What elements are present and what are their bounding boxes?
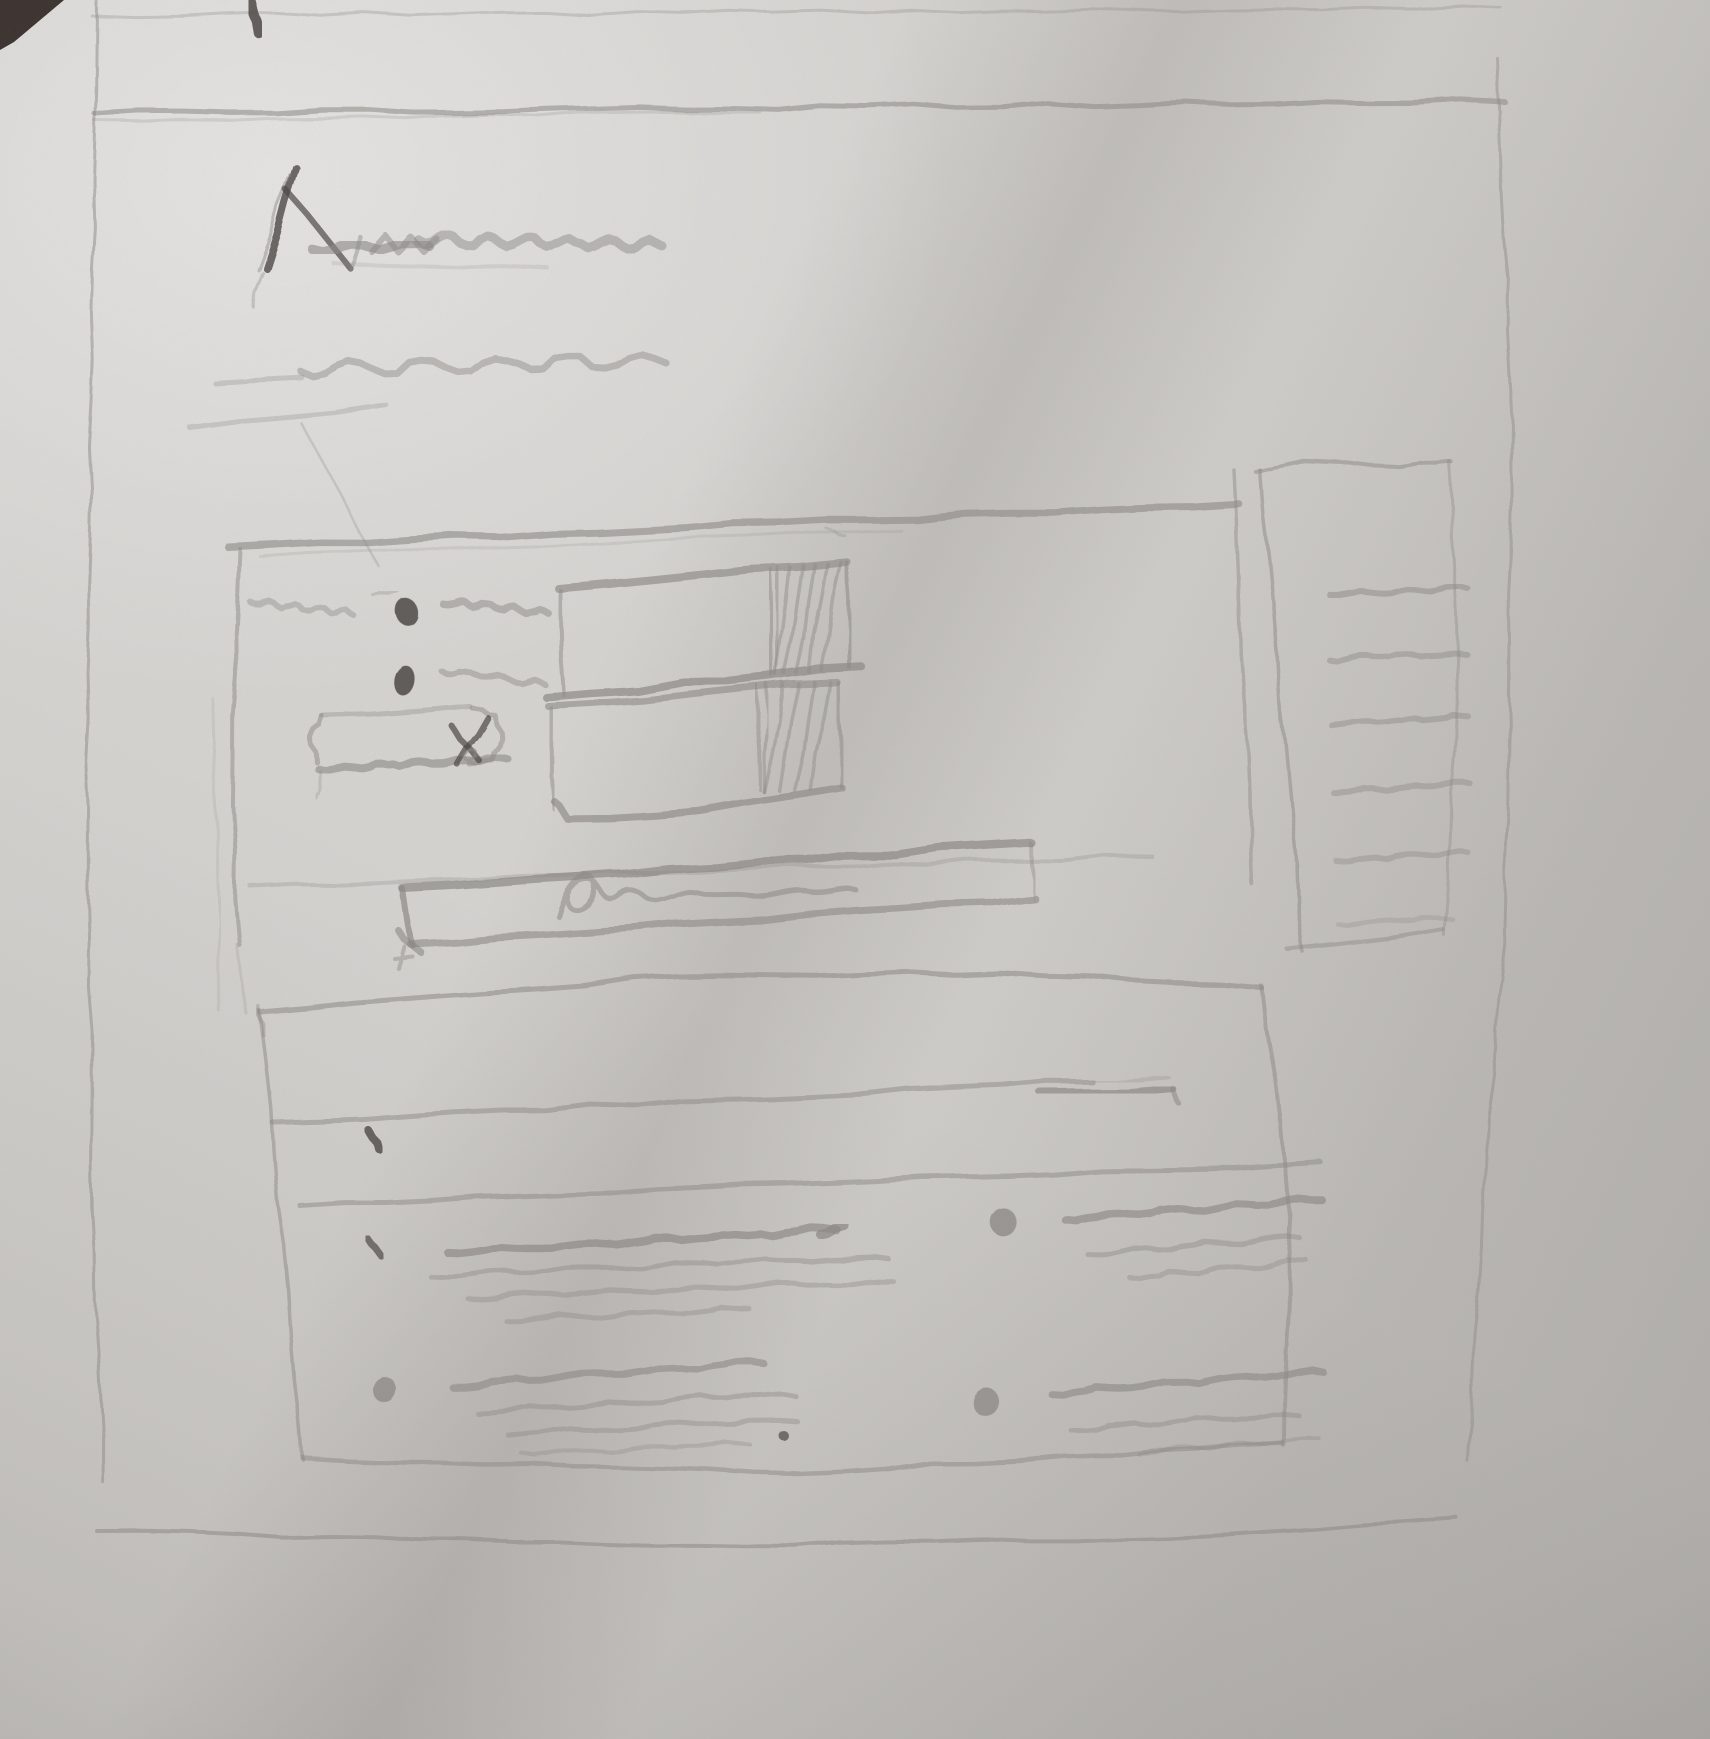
paper-grain-texture	[0, 0, 1710, 1739]
wireframe-sketch-canvas	[0, 0, 1710, 1739]
